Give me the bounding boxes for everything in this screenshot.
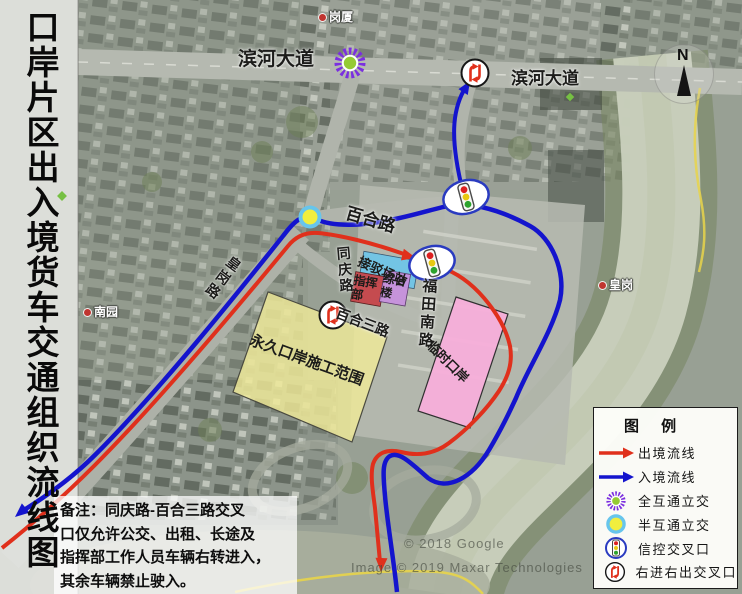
traffic-flow-map: 滨河大道 滨河大道 百合路 福田南路 同庆路 皇岗路 百合三路 永久口岸施工范围… <box>0 0 742 594</box>
compass-arrow-icon <box>677 65 691 96</box>
note-line: 口仅允许公交、出租、长途及 <box>60 523 298 547</box>
place-dot <box>598 281 607 290</box>
exit-arrow-icon <box>594 446 638 460</box>
note-box: 备注：同庆路-百合三路交叉 口仅允许公交、出租、长途及 指挥部工作人员车辆右转进… <box>60 499 298 593</box>
google-watermark: © 2018 Google <box>404 536 505 551</box>
place-label-huanggang: 皇岗 <box>598 276 633 293</box>
half-interchange-icon <box>301 208 320 227</box>
legend-row: 出境流线 <box>594 441 737 465</box>
road-label-binhe-right: 滨河大道 <box>511 64 579 89</box>
note-line: 其余车辆禁止驶入。 <box>60 570 298 594</box>
right-in-right-out-icon-binhe <box>462 60 489 87</box>
place-dot <box>83 308 92 317</box>
legend-row: 入境流线 <box>594 465 737 489</box>
compass-north-label: N <box>677 47 689 65</box>
right-in-right-out-icon <box>594 560 635 584</box>
half-interchange-icon <box>594 512 638 536</box>
full-interchange-icon <box>594 489 638 513</box>
place-label-nanyuan: 南园 <box>83 303 118 320</box>
place-dot <box>318 13 327 22</box>
compass-rose: N <box>654 44 714 104</box>
legend-box: 图 例 出境流线 入境流线 全互通立交 半互通立交 <box>593 407 738 589</box>
place-label-gangxia: 岗厦 <box>318 8 353 25</box>
signal-intersection-icon <box>594 536 638 560</box>
legend-row: 右进右出交叉口 <box>594 560 737 584</box>
legend-title: 图 例 <box>594 415 737 436</box>
legend-row: 半互通立交 <box>594 512 737 536</box>
note-line: 备注：同庆路-百合三路交叉 <box>60 499 298 523</box>
entry-arrow-icon <box>594 470 638 484</box>
zone-label-complex-building: 综合楼 <box>379 271 410 303</box>
legend-row: 信控交叉口 <box>594 536 737 560</box>
note-line: 指挥部工作人员车辆右转进入， <box>60 546 298 570</box>
road-label-binhe-left: 滨河大道 <box>238 44 314 71</box>
legend-row: 全互通立交 <box>594 489 737 513</box>
maxar-watermark: Image © 2019 Maxar Technologies <box>351 560 583 575</box>
zone-label-command-post: 指挥部 <box>350 273 381 305</box>
